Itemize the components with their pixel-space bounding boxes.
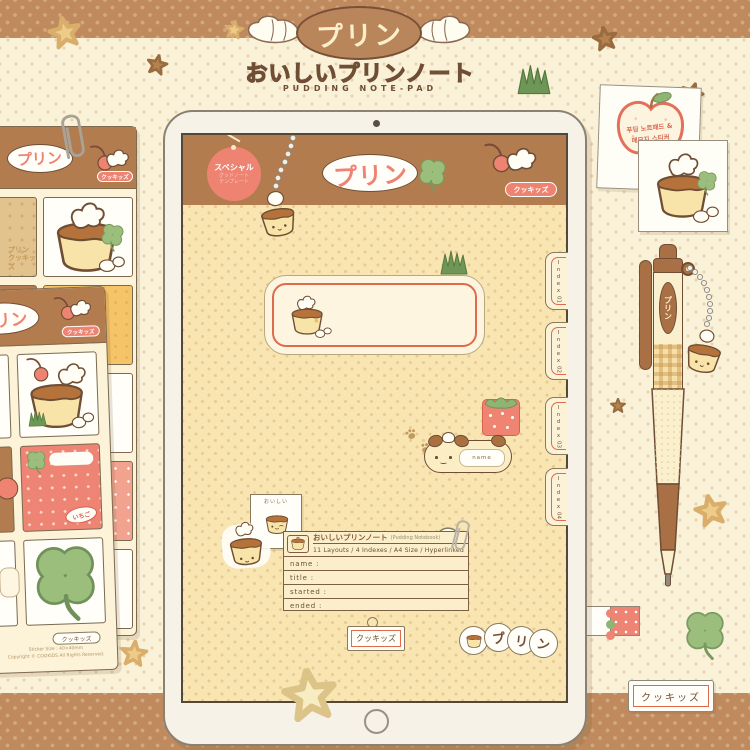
special-tag-line3: テンプレート — [219, 179, 249, 185]
bubble-char-text: ン — [535, 633, 552, 655]
info-card: おいしいプリンノート (Pudding Notebook) 11 Layouts… — [283, 531, 469, 611]
sticker-tile-partial — [0, 540, 18, 627]
sticker-tile-partial — [0, 354, 12, 439]
dog-mouth — [440, 461, 447, 464]
tab-word: Index — [556, 260, 562, 295]
grass-icon — [437, 248, 471, 276]
sticker-tile-pudding — [43, 197, 133, 277]
sticker-tile-strawberry: いちご — [20, 443, 103, 532]
mini-card-text: おいしい — [251, 498, 301, 505]
title-badge: プリン — [296, 6, 422, 60]
index-tab-01[interactable]: Index01 — [545, 252, 568, 310]
brand-label-plate: クッキッズ — [628, 680, 714, 712]
dog-eye — [435, 456, 438, 459]
sheet2-header: プリン クッキッズ — [0, 287, 106, 347]
info-pudding-icon — [288, 536, 308, 552]
name-tag-field: name — [459, 449, 505, 467]
red-circle-shape — [0, 477, 19, 500]
label-pill-shape — [49, 451, 93, 466]
tab-num: 03 — [556, 441, 562, 448]
sticker-sheet-2: プリン クッキッズ いちご クッキッズ Sticker Size : 40×40… — [0, 286, 119, 674]
cover-bottom-tag-text: クッキッズ — [351, 630, 401, 647]
paw-icon — [402, 425, 420, 443]
star-icon — [610, 398, 626, 414]
index-tab-02[interactable]: Index02 — [545, 322, 568, 380]
cover-brand-badge: クッキッズ — [505, 182, 557, 197]
grass-icon — [510, 62, 558, 96]
cover-logo-oval: プリン — [322, 154, 418, 192]
tab-word: Index — [556, 330, 562, 365]
big-clover-icon — [32, 542, 99, 622]
sticker-tile-clover — [23, 537, 106, 626]
sheet2-logo-text: プリン — [0, 304, 28, 333]
sheet1-brand-badge: クッキッズ — [97, 171, 133, 182]
page-subtitle-en: PUDDING NOTE-PAD — [180, 84, 540, 93]
pen-label-text: プリン — [663, 296, 674, 320]
tablet-camera — [373, 120, 380, 127]
sheet2-footer-badge: クッキッズ — [52, 631, 100, 645]
paperclip-icon — [445, 515, 477, 556]
pudding-cherry-icon — [18, 352, 99, 437]
sheet1-watermark-2: クッキッズ — [8, 254, 36, 271]
star-icon — [590, 24, 620, 54]
sheet1-logo-text: プリン — [17, 147, 63, 170]
special-tag-hole — [231, 145, 236, 150]
poster-canvas: プリン おいしいプリンノート PUDDING NOTE-PAD プリン クッキッ… — [0, 0, 750, 750]
tablet-body: スペシャル グッドノート テンプレート プリン クッキッズ — [163, 110, 587, 746]
wing-right-icon — [416, 14, 474, 48]
title-badge-text: プリン — [315, 12, 403, 54]
info-field-ended: ended : — [284, 598, 468, 612]
pudding-face-sticker — [219, 518, 272, 571]
star-icon — [45, 13, 85, 53]
star-icon — [144, 52, 170, 78]
strawberry-leaf-icon — [483, 396, 519, 410]
brand-label-text: クッキッズ — [633, 685, 709, 707]
dog-ear — [453, 433, 471, 449]
pen-lower — [648, 388, 688, 590]
index-tab-03[interactable]: Index03 — [545, 397, 568, 455]
strawberry-sticker — [482, 399, 520, 436]
bubble-pudding-icon — [463, 632, 485, 650]
tab-num: 04 — [556, 512, 562, 519]
star-icon — [691, 491, 731, 531]
sticker-tile-partial — [0, 446, 15, 533]
info-field-name: name : — [284, 556, 468, 570]
cover-title-box — [264, 275, 485, 355]
cover-logo-text: プリン — [332, 154, 409, 193]
pen-label-oval: プリン — [659, 282, 677, 334]
index-tab-04[interactable]: Index04 — [545, 468, 568, 526]
info-field-started: started : — [284, 584, 468, 598]
dog-name-tag: name — [424, 440, 512, 473]
sheet2-cream-icon — [69, 297, 94, 318]
cover-charm-chain — [249, 133, 309, 251]
info-card-title-jp: おいしいプリンノート — [313, 532, 388, 543]
bubble-char-text: リ — [514, 630, 529, 650]
clover-icon — [25, 450, 48, 475]
memo-pudding-icon — [644, 149, 724, 227]
eraser-strawberry-sleeve — [610, 606, 640, 636]
cover-bottom-tag: クッキッズ — [347, 626, 405, 651]
tab-num: 02 — [556, 366, 562, 373]
sheet2-brand-badge: クッキッズ — [62, 325, 100, 337]
pen-clip — [639, 260, 652, 370]
pudding-sticker-icon — [44, 198, 132, 276]
pen-charm-chain — [678, 258, 740, 383]
tablet-home-button[interactable] — [364, 709, 389, 734]
dog-eye — [449, 456, 452, 459]
sheet1-cream-icon — [105, 147, 131, 169]
info-card-title-en: (Pudding Notebook) — [391, 535, 441, 541]
tab-word: Index — [556, 405, 562, 440]
tablet-screen: スペシャル グッドノート テンプレート プリン クッキッズ — [181, 133, 568, 703]
star-icon — [223, 19, 246, 42]
tab-word: Index — [556, 476, 562, 511]
strawberry-badge: いちご — [64, 504, 99, 526]
title-box-pudding-icon — [283, 292, 335, 342]
info-card-icon-box — [287, 535, 309, 553]
tab-num: 01 — [556, 296, 562, 303]
wing-left-icon — [244, 14, 302, 48]
blob-shape — [0, 567, 20, 598]
sheet2-logo-oval: プリン — [0, 301, 40, 336]
star-icon — [278, 664, 341, 727]
star-icon — [119, 639, 150, 670]
memo-note-pudding — [638, 140, 728, 232]
clover-icon — [684, 610, 726, 660]
special-tag-line1: スペシャル — [214, 163, 253, 173]
cover-clover-icon — [416, 155, 449, 195]
cover-cream-icon — [505, 145, 539, 173]
sticker-tile-pattern: プリン クッキッズ — [0, 197, 37, 277]
info-field-title: title : — [284, 570, 468, 584]
sticker-tile-pudding-cherry — [17, 351, 100, 438]
bubble-char-text: プ — [491, 627, 507, 648]
